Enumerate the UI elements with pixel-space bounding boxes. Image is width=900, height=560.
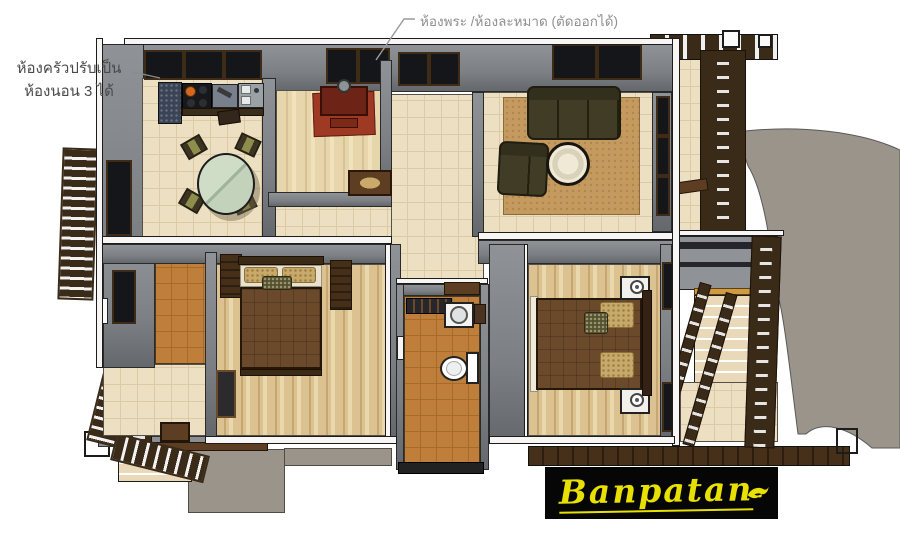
bed-left-blanket [240,287,322,369]
prayer-room-annotation: ห้องพระ /ห้องละหมาด (ตัดออกได้) [420,10,618,32]
bathroom-sink-basin [450,306,468,324]
entry-window [398,52,460,86]
sink-basin-2 [241,96,251,105]
pergola-post-cap-2 [758,34,772,48]
kitchen-window [144,50,262,80]
master-accent-pillow [584,312,608,334]
lamp-top [630,280,644,294]
wall-cap-mid-right [478,232,676,240]
kitchen-annotation-line1: ห้องครัวปรับเป็น [2,58,136,81]
wall-cap-top [124,38,676,45]
wardrobe-right [330,260,352,310]
concrete-path-strip [284,448,392,466]
armchair [497,141,550,198]
stove-burner [199,86,207,94]
bathroom-door [444,282,480,295]
wall-cap-bottom-right [489,436,675,444]
pergola-post-cap [722,30,740,48]
wall-face-master-left [489,244,528,444]
kitchen-annotation: ห้องครัวปรับเป็น ห้องนอน 3 ได้ [2,58,136,103]
prayer-door [348,170,392,196]
wall-kitchen-prayer [262,78,276,240]
bottom-deck [528,446,850,466]
wall-cap-right [672,38,680,446]
floor-plan-canvas: ห้องพระ /ห้องละหมาด (ตัดออกได้) ห้องครัว… [0,0,900,560]
bathroom-door-handle [397,336,404,360]
entry-hall-floor [390,94,484,288]
stove-burner-3 [199,99,207,107]
wall-face-bathroom-left [396,284,404,470]
sofa [527,86,621,140]
wall-cap-bottom-left [205,436,397,444]
bathroom-cabinet [474,304,486,324]
bathroom-threshold [398,462,484,474]
living-room-window [552,44,642,80]
wall-cap-bedroom-left-right [385,244,391,438]
wall-cap-master-left [524,244,528,440]
bed-left-accent-pillow [262,276,292,290]
pergola-lattice [700,50,746,240]
toilet-bowl-inner [446,361,462,376]
bedroom-left-mirror [216,370,236,418]
left-wall-window [106,160,132,236]
sink-basin-1 [241,85,251,94]
left-trellis [57,147,98,300]
utility-wall-window [112,270,136,324]
lamp-bottom [630,393,644,407]
stove-burner-orange [185,86,196,97]
kitchen-annotation-line2: ห้องนอน 3 ได้ [2,81,136,104]
master-headboard [642,290,652,396]
dining-table [197,153,255,215]
wall-cap-mid-left [98,236,392,244]
bed-left-footboard [240,369,322,376]
altar-tray [330,118,358,128]
master-pillow-2 [600,352,634,378]
logo-text: Banpatan [559,472,754,513]
utility-room-floor [155,260,207,364]
sink-faucet [254,88,259,93]
entry-door [160,422,190,442]
toilet-tank [466,352,479,384]
coffee-table [546,142,590,186]
wall-living-left [472,92,484,237]
deck-post [836,428,858,454]
altar-vase [337,79,351,93]
granite-counter [158,82,182,124]
banpatan-logo: Banpatan [545,467,778,519]
stove-burner-2 [187,99,195,107]
bed-left-headboard [238,256,324,265]
living-glass-door [656,96,670,216]
